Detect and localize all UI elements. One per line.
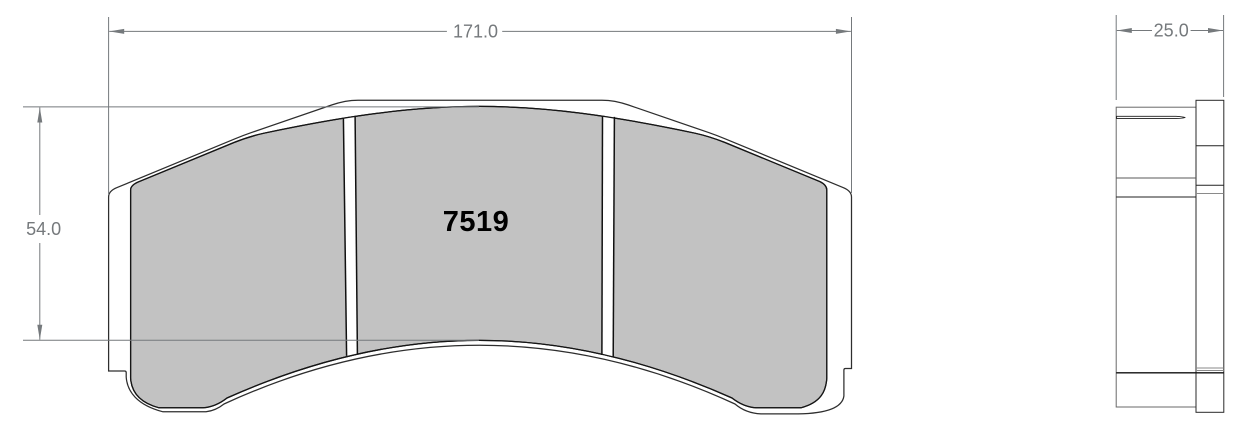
svg-text:54.0: 54.0 xyxy=(26,219,61,239)
svg-text:171.0: 171.0 xyxy=(453,22,498,42)
svg-text:7519: 7519 xyxy=(443,206,510,238)
svg-text:25.0: 25.0 xyxy=(1154,21,1189,41)
